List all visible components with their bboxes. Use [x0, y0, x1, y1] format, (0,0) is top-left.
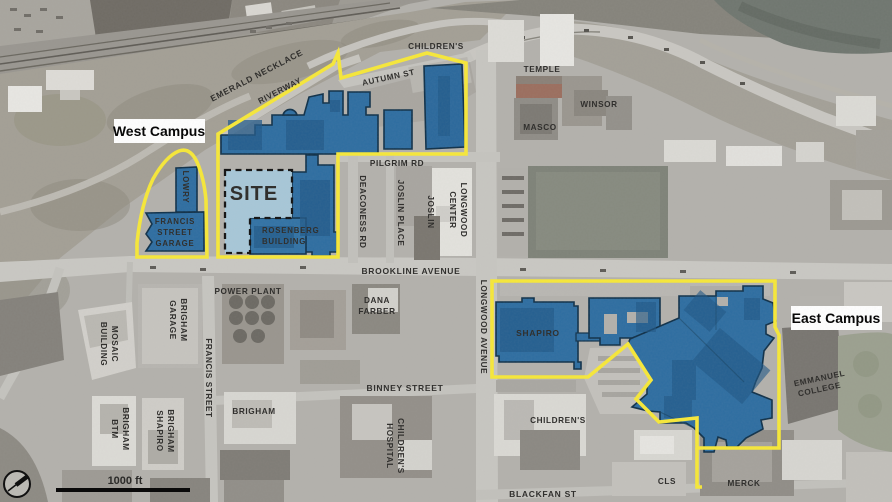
svg-text:1000 ft: 1000 ft [108, 475, 143, 487]
